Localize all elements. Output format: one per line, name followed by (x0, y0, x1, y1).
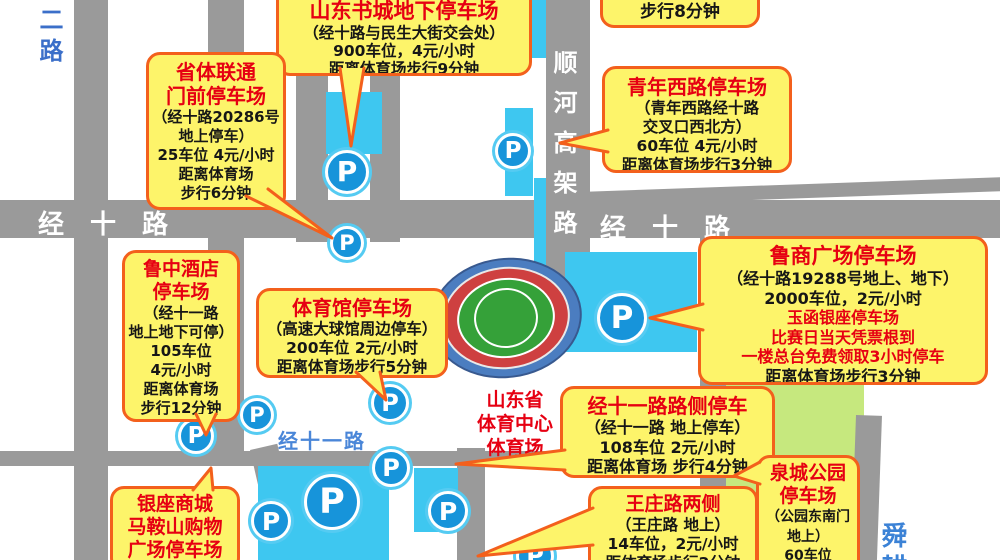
callout-title: 门前停车场 (149, 84, 283, 108)
stadium-label-line: 体育中心 (460, 412, 570, 436)
callout-walk-8min-partial: 步行8分钟 (600, 0, 760, 28)
callout-shengti-liantong: 省体联通门前停车场（经十路20286号地上停车）25车位 4元/小时距离体育场步… (146, 52, 286, 210)
callout-text-line: （经十路20286号 (149, 108, 283, 127)
callout-text-line: 2000车位，2元/小时 (701, 289, 985, 309)
callout-text-line: 距离体育场步行9分钟 (279, 60, 529, 76)
parking-map: 山东省 体育中心 体育场 经十路 经十路 顺河高架路 经十一路 纬二路 舜耕路 … (0, 0, 1000, 560)
callout-title: 体育馆停车场 (259, 296, 445, 320)
callout-title: 鲁商广场停车场 (701, 244, 985, 269)
callout-text-line: 距离体育场步行5分钟 (259, 358, 445, 377)
callout-text-line: （经十路19288号地上、地下） (701, 269, 985, 289)
road-segment (74, 0, 108, 560)
callout-text-line: 距离体育场 (149, 165, 283, 184)
callout-text-line: （公园东南门 (759, 508, 857, 528)
callout-text-line: 距离体育场步行3分钟 (605, 156, 789, 173)
parking-p-icon: P (495, 133, 531, 169)
parking-zone (326, 92, 382, 154)
callout-quancheng-park: 泉城公园停车场（公园东南门地上）60车位 (756, 455, 860, 560)
parking-p-icon: P (371, 384, 409, 422)
parking-p-icon: P (330, 226, 364, 260)
callout-text-line: 25车位 4元/小时 (149, 146, 283, 165)
callout-text-line: 地上） (759, 528, 857, 548)
callout-title: 停车场 (759, 485, 857, 508)
callout-text-line: 14车位，2元/小时 (591, 535, 755, 554)
callout-text-line: 步行8分钟 (603, 2, 757, 23)
callout-yinzuo-mall: 银座商城马鞍山购物广场停车场 (110, 486, 240, 560)
callout-text-line: 步行12分钟 (125, 399, 237, 418)
callout-title: 马鞍山购物 (113, 516, 237, 539)
callout-lushang-plaza: 鲁商广场停车场（经十路19288号地上、地下）2000车位，2元/小时玉函银座停… (698, 236, 988, 385)
callout-wangzhuang-road: 王庄路两侧（王庄路 地上）14车位，2元/小时距体育场步行2分钟 (588, 486, 758, 560)
callout-text-line: （经十路与民生大街交会处） (279, 24, 529, 42)
callout-title: 王庄路两侧 (591, 493, 755, 516)
callout-title: 广场停车场 (113, 539, 237, 560)
callout-text-line: 距离体育场 步行4分钟 (563, 457, 772, 477)
callout-text-line: 地上停车） (149, 127, 283, 146)
stadium-label-line: 山东省 (460, 388, 570, 412)
callout-title: 经十一路路侧停车 (563, 394, 772, 418)
callout-text-line: 一楼总台免费领取3小时停车 (701, 347, 985, 367)
callout-text-line: 玉函银座停车场 (701, 308, 985, 328)
callout-title: 停车场 (125, 281, 237, 304)
callout-jingshiyi-roadside: 经十一路路侧停车（经十一路 地上停车）108车位 2元/小时距离体育场 步行4分… (560, 386, 775, 478)
parking-p-icon: P (178, 418, 214, 454)
callout-text-line: 60车位 4元/小时 (605, 137, 789, 156)
parking-p-icon: P (304, 474, 360, 530)
callout-luzhong-hotel: 鲁中酒店停车场（经十一路地上地下可停）105车位4元/小时距离体育场步行12分钟 (122, 250, 240, 422)
parking-p-icon: P (251, 501, 291, 541)
road-label-weier: 纬二路 (32, 0, 67, 69)
callout-title: 省体联通 (149, 60, 283, 84)
parking-p-icon: P (325, 150, 369, 194)
callout-title: 青年西路停车场 (605, 75, 789, 99)
callout-text-line: 比赛日当天凭票根到 (701, 328, 985, 348)
parking-p-icon: P (372, 449, 410, 487)
road-label-shungeng: 舜耕路 (874, 522, 911, 560)
parking-p-icon: P (240, 398, 274, 432)
callout-text-line: （经十一路 地上停车） (563, 418, 772, 438)
road-label-shunhe-viaduct: 顺河高架路 (546, 50, 581, 250)
callout-text-line: 距离体育场步行3分钟 (701, 367, 985, 386)
stadium-graphic (423, 249, 588, 387)
callout-text-line: 60车位 (759, 547, 857, 560)
parking-p-icon: P (516, 537, 554, 560)
parking-p-icon: P (597, 293, 647, 343)
stadium-label-line: 体育场 (460, 436, 570, 460)
callout-text-line: （高速大球馆周边停车） (259, 320, 445, 339)
callout-tiyuguan: 体育馆停车场（高速大球馆周边停车）200车位 2元/小时距离体育场步行5分钟 (256, 288, 448, 378)
callout-text-line: （青年西路经十路 (605, 99, 789, 118)
callout-text-line: 108车位 2元/小时 (563, 438, 772, 458)
callout-text-line: 距体育场步行2分钟 (591, 554, 755, 560)
callout-text-line: 步行6分钟 (149, 184, 283, 203)
callout-text-line: （经十一路 (125, 304, 237, 323)
callout-title: 银座商城 (113, 493, 237, 516)
parking-p-icon: P (428, 491, 468, 531)
callout-text-line: 交叉口西北方） (605, 118, 789, 137)
callout-text-line: 200车位 2元/小时 (259, 339, 445, 358)
callout-title: 泉城公园 (759, 462, 857, 485)
callout-qingnian-xilu: 青年西路停车场（青年西路经十路交叉口西北方）60车位 4元/小时距离体育场步行3… (602, 66, 792, 173)
callout-text-line: 地上地下可停） (125, 323, 237, 342)
callout-text-line: 距离体育场 (125, 380, 237, 399)
stadium-label: 山东省 体育中心 体育场 (460, 388, 570, 460)
callout-title: 山东书城地下停车场 (279, 0, 529, 24)
callout-text-line: 4元/小时 (125, 361, 237, 380)
callout-text-line: 900车位，4元/小时 (279, 42, 529, 60)
callout-title: 鲁中酒店 (125, 258, 237, 281)
road-label-jingshiyi: 经十一路 (278, 425, 366, 454)
callout-text-line: 105车位 (125, 342, 237, 361)
callout-shandong-book-city: 山东书城地下停车场（经十路与民生大街交会处）900车位，4元/小时距离体育场步行… (276, 0, 532, 76)
callout-text-line: （王庄路 地上） (591, 516, 755, 535)
